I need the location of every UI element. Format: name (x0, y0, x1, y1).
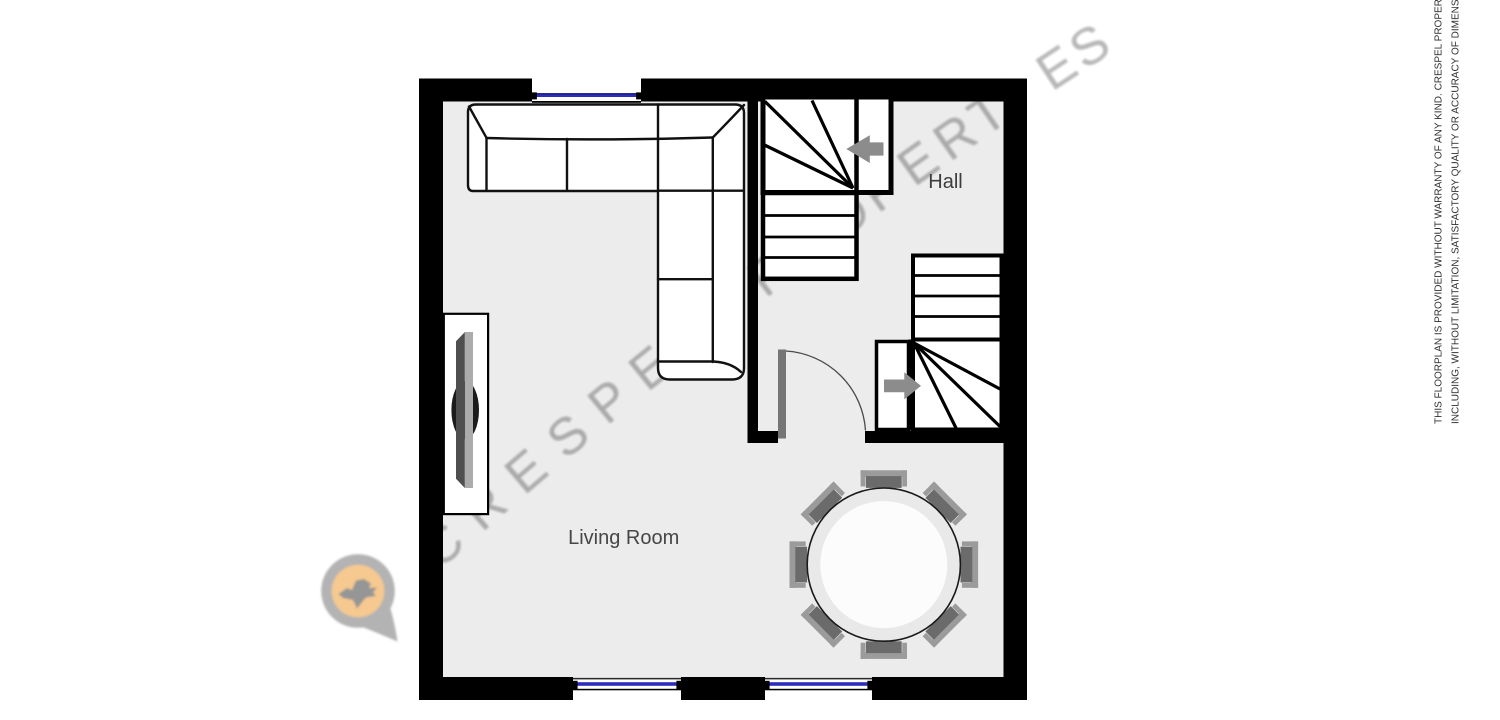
svg-text:Living Room: Living Room (568, 527, 679, 549)
svg-text:Hall: Hall (928, 171, 962, 193)
svg-text:INCLUDING, WITHOUT LIMITATION,: INCLUDING, WITHOUT LIMITATION, SATISFACT… (1451, 0, 1462, 424)
svg-text:THIS FLOORPLAN IS PROVIDED WIT: THIS FLOORPLAN IS PROVIDED WITHOUT WARRA… (1434, 0, 1445, 424)
